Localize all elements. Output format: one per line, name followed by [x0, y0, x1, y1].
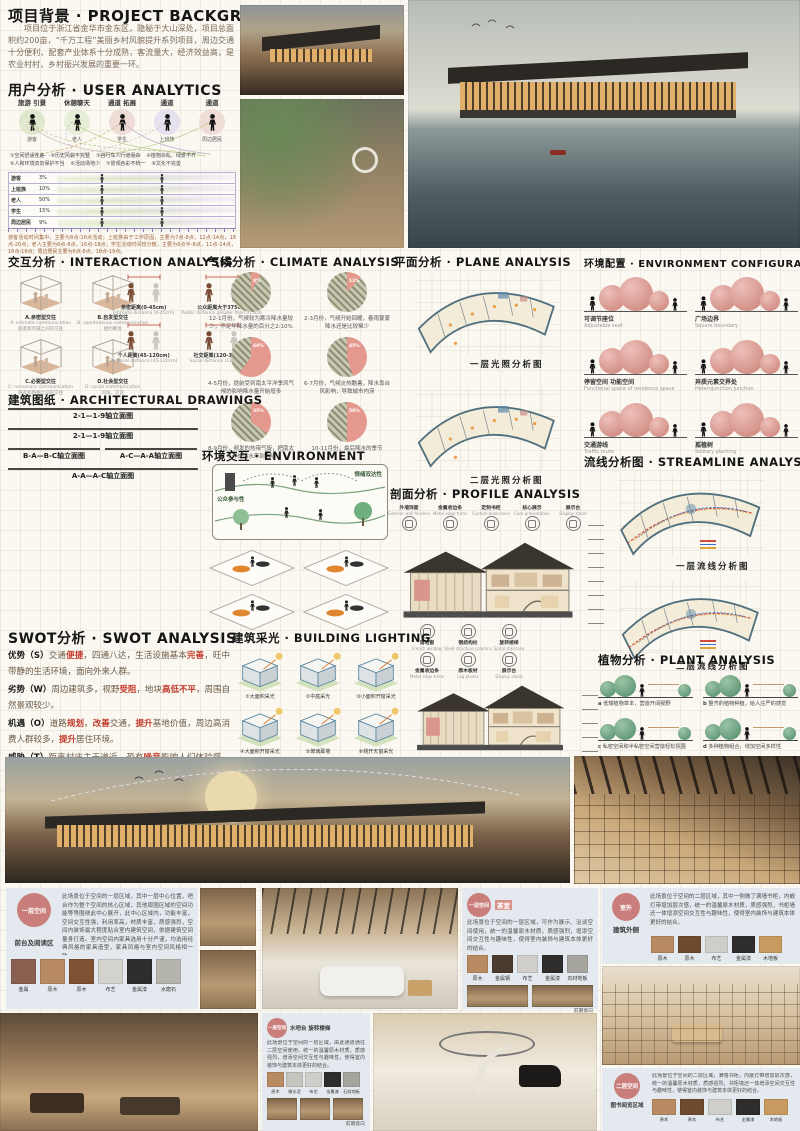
elevation-drawing: [8, 428, 198, 430]
panel-text: 此场景位于空间的一层区域，可作为展示、洽谈空间使用，统一的温馨原木材质，质感强烈…: [467, 919, 593, 953]
lighting-label: ③小面积开窗采光: [356, 693, 395, 700]
material-swatch: [567, 955, 588, 973]
elevation-drawing: [105, 448, 197, 450]
person-icon: [671, 298, 679, 311]
elevation-item: A-C—A-A轴立面图: [105, 448, 197, 463]
iso-tile-diagram: [208, 548, 296, 588]
plant-scene: [598, 670, 693, 698]
user-activity-label: 旅游 引景: [18, 97, 46, 107]
material: 布艺: [98, 959, 123, 993]
callout-icon: [502, 652, 517, 667]
tree-icon: [619, 340, 653, 374]
material: 石材地板: [567, 955, 588, 982]
render-cafe-photo: [0, 1013, 258, 1131]
plant-text: 整齐的植物种植，给人庄严的感觉: [708, 701, 786, 707]
material: 金属: [11, 959, 36, 993]
tree-icon: [760, 354, 780, 374]
material-label: 原木: [47, 986, 57, 993]
activity-timeline: [57, 184, 235, 194]
rainfall-pie: 45%: [327, 337, 367, 377]
callout-label-zh: 金属收边条: [415, 667, 439, 674]
material: 木地板: [759, 936, 782, 962]
spiral-stair: [465, 1043, 515, 1099]
lighting-title: 建筑采光 · BUILDING LIGHTING: [232, 630, 431, 646]
distance-cell: 亲密距离(0-45cm) Intimate distance (0-45cm): [110, 272, 177, 316]
floor-tag-badge: 一层空间: [467, 893, 491, 917]
tree-icon: [614, 675, 636, 697]
material: 布艺: [705, 936, 728, 962]
envconf-label-en: Functional space of residence space: [584, 386, 687, 392]
activity-figure-icon: [99, 207, 105, 216]
plant-item: a 低矮植物草本，营造开阔视野: [598, 670, 693, 707]
material-label: 金属漆: [545, 975, 560, 982]
row-percent: 50%: [39, 197, 57, 203]
activity-figure-icon: [159, 185, 165, 194]
lighting-item: ①大面积采光: [234, 650, 286, 700]
lighting-item: ④大面积开窗采光: [234, 705, 286, 755]
callout-label-zh: 外墙饰面: [399, 504, 418, 511]
plant-items: a 低矮植物草本，营造开阔视野 b 整齐的植物种植，给人庄严的感觉: [598, 670, 798, 750]
material-label: 金属: [18, 986, 28, 993]
activity-timeline: [57, 195, 235, 205]
material-label: 木地板: [770, 1117, 783, 1123]
table: [120, 1097, 180, 1115]
envconf-label-zh: 孤植树: [695, 440, 798, 449]
panel-reception: 一层空间 前台及阅读区 此场景位于空间的一层区域，其中一层中心位置，吧台作为整个…: [6, 888, 198, 1009]
envconf-labels: 异质元素交界处 Heterojunction junction: [695, 377, 798, 392]
arrow-line: [753, 727, 784, 728]
render-elevation-dusk-photo: [5, 757, 570, 883]
tree-icon: [783, 684, 796, 697]
row-user-label: 老人: [9, 197, 39, 204]
floor2-flow-plan: [596, 576, 786, 664]
plant-item: b 整齐的植物种植，给人庄严的感觉: [703, 670, 798, 707]
material-swatch: [286, 1072, 303, 1087]
lighting-cube-diagram: [350, 705, 402, 747]
interaction-distances: 亲密距离(0-45cm) Intimate distance (0-45cm) …: [110, 272, 202, 364]
callout-icon: [502, 624, 517, 639]
row-percent: 3%: [39, 175, 57, 181]
material-swatch: [98, 959, 123, 984]
plant-key: a: [598, 701, 602, 707]
profile-callouts-mid2: 金属收边条 Metal edge trims 原木板材 Log planks 展…: [410, 652, 526, 679]
env-tag-left: 公众参与性: [217, 495, 245, 503]
user-activity-label: 通道: [161, 97, 174, 107]
issue-label: ②历史风貌不完整: [50, 152, 89, 159]
envconf-label-zh: 交通游线: [584, 440, 687, 449]
lighting-item: ③小面积开窗采光: [350, 650, 402, 700]
material-swatch: [705, 936, 728, 953]
birds-icon: [468, 16, 528, 36]
person-icon: [638, 727, 646, 740]
plant-item: d 多种植物组合，增加空间多样性: [703, 713, 798, 750]
callout-icon: [443, 516, 458, 531]
material-swatch: [324, 1072, 341, 1087]
tree-icon: [730, 403, 764, 437]
env-tag-top: 情绪双达性: [354, 470, 382, 478]
deck-line: [460, 110, 736, 118]
elevation-label: A-C—A-A轴立面图: [105, 451, 197, 461]
cube-label-zh: C.必要型交往: [25, 378, 56, 385]
elevation-drawing: [8, 468, 198, 470]
material-label: 原木: [684, 955, 694, 962]
material-swatch: [467, 955, 488, 973]
material-swatch: [343, 1072, 360, 1087]
plant-key: c: [598, 744, 601, 750]
render-dusk-pavilion-photo: [240, 5, 404, 95]
render-reading-lounge-photo: [262, 888, 458, 1009]
callout-icon: [461, 624, 476, 639]
material-swatches: 金属 原木 原木 布艺 金属漆: [11, 959, 193, 993]
lighting-items: ①大面积采光 ②中庭采光 ③小面积开窗采光 ④大面积开窗采光 ⑤玻璃幕墙: [234, 650, 402, 755]
swot-title: SWOT分析 · SWOT ANALYSIS: [8, 628, 237, 648]
callout-label-zh: 展示台: [502, 667, 516, 674]
envconf-label-zh: 停留空间 功能空间: [584, 377, 687, 386]
legend-secondary-route: [700, 644, 716, 646]
tree-icon: [760, 291, 780, 311]
material-swatch: [542, 955, 563, 973]
table-row: 游客 3%: [9, 173, 235, 184]
environment-title: 环境交互 · ENVIRONMENT: [202, 448, 365, 464]
issue-label: ⑦景观色彩不统一: [106, 160, 145, 167]
callout-label-zh: 旋转楼梯: [499, 639, 518, 646]
envconf-labels: 停留空间 功能空间 Functional space of residence …: [584, 377, 687, 392]
pie-percent: 8%: [253, 279, 261, 284]
material-label: 木地板: [763, 955, 778, 962]
material: 原木: [652, 1099, 676, 1123]
callout-icon: [402, 516, 417, 531]
activity-figure-icon: [159, 174, 165, 183]
material-swatch: [267, 1072, 284, 1087]
envconf-label-zh: 可调节座位: [584, 314, 687, 323]
issue-label: ⑤人和环境双向保护不当: [10, 160, 64, 167]
envconf-item: 可调节座位 Adjustable seat: [584, 272, 687, 329]
rainfall-pie: 60%: [231, 337, 271, 377]
reference-photo: [467, 985, 528, 1007]
callout-label-zh: 展示台: [566, 504, 580, 511]
callout: 展示台 Display stand: [492, 652, 526, 679]
floor-tag-badge: 一层空间: [267, 1018, 287, 1038]
dimension-marks: [582, 682, 598, 752]
distance-cell: 个人距离(45-120cm) Personal distance (45-120…: [110, 320, 177, 364]
person-icon: [782, 361, 790, 374]
tree-icon: [730, 277, 764, 311]
tree-icon: [730, 340, 764, 374]
material-label: 布艺: [711, 955, 721, 962]
callout: 定制书柜 Custom bookcases: [474, 504, 508, 531]
envconf-label-en: Heterojunction junction: [695, 386, 798, 392]
envconf-scene: [584, 398, 687, 438]
elevation-label: B-A—B-C轴立面图: [8, 451, 100, 461]
activity-figure-icon: [99, 218, 105, 227]
callout: 核心展示 Core presentation: [515, 504, 549, 531]
callout-label-zh: 原木板材: [458, 667, 477, 674]
swot-label: 劣势（W）: [8, 685, 51, 695]
zone-label: 茶室: [495, 900, 512, 910]
main-lit-facade: [460, 82, 736, 110]
swot-paragraph: 优势（S）交通便捷，四通八达，生活设施基本完善，旺中带静的生活环境，面向外来人群…: [8, 648, 230, 680]
section-drawing-2: [400, 678, 580, 754]
reference-label: 前期意向: [267, 1120, 365, 1127]
material-label: 原木: [660, 1117, 668, 1123]
callout: 外墙饰面 Exterior wall finishes: [392, 504, 426, 531]
flight-arc: [45, 761, 525, 805]
user-issues: ①空间舒适性差②历史风貌不完整③自行车人行道混杂④植物杂乱、绿景不齐⑤人和环境双…: [10, 152, 236, 167]
cube-diagram: [11, 272, 71, 314]
material-label: 原木: [472, 975, 482, 982]
table-row: 上班族 10%: [9, 184, 235, 195]
swot-paragraph: 劣势（W）周边建筑多，视野受阻，地块高低不平，周围自然景观较少。: [8, 682, 230, 714]
issue-label: ⑥活动场地少: [70, 160, 99, 167]
callout: 金属收边条 Metal edge trims: [410, 652, 444, 679]
envconf-item: 广场边界 Square boundary: [695, 272, 798, 329]
issue-label: ①空间舒适性差: [10, 152, 44, 159]
white-sofa: [320, 966, 404, 996]
legend-main-route: [700, 640, 716, 642]
row-user-label: 游客: [9, 175, 39, 182]
plant-caption: b 整齐的植物种植，给人庄严的感觉: [703, 700, 798, 707]
lighting-label: ①大面积采光: [245, 693, 274, 700]
material-label: 布艺: [716, 1117, 724, 1123]
profile-title: 剖面分析 · PROFILE ANALYSIS: [390, 486, 580, 502]
callout: 展示台 Display stand: [556, 504, 590, 531]
lighting-item: ⑤玻璃幕墙: [292, 705, 344, 755]
tree-icon: [678, 727, 691, 740]
material-label: 金属漆: [132, 986, 147, 993]
envconf-labels: 交通游线 Traffic route: [584, 440, 687, 455]
elevation-drawing: [8, 408, 198, 410]
elevation-item: B-A—B-C轴立面图: [8, 448, 100, 463]
user-activity-table: 游客 3% 上班族 10% 老人 50%: [8, 172, 236, 229]
floor-tag-badge: 室外: [612, 893, 640, 921]
material-label: 金属漆: [326, 1089, 339, 1095]
material: 金属钢: [492, 955, 513, 982]
arrow-line: [753, 684, 784, 685]
envconf-items: 可调节座位 Adjustable seat 广场边界 Square bounda…: [584, 272, 798, 455]
activity-figure-icon: [159, 196, 165, 205]
distance-label-en: Intimate distance (0-45cm): [113, 311, 174, 316]
material-label: 原木: [76, 986, 86, 993]
callout: 钢结构柱 Steel structure columns: [451, 624, 485, 651]
callout-label-zh: 核心展示: [522, 504, 541, 511]
rainfall-pie: 12%: [327, 272, 367, 312]
tree-icon: [649, 417, 669, 437]
envconf-item: 交通游线 Traffic route: [584, 398, 687, 455]
tree-icon: [719, 675, 741, 697]
wood-table: [672, 1024, 722, 1042]
activity-timeline: [57, 173, 235, 183]
panel-exterior: 室外 建筑外侧 此场景位于空间的二层区域，其中一侧做了满墙书柜，内嵌灯带增加层次…: [602, 888, 800, 964]
legend-secondary-route: [700, 544, 716, 546]
reference-photo: [532, 985, 593, 1007]
callout-label-zh: 钢结构柱: [458, 639, 477, 646]
tree-icon: [619, 403, 653, 437]
panel-text: 此场景位于空间的一层区域，由此通道通往二层空间使用，统一的温馨原木材质，质感强烈…: [267, 1040, 365, 1070]
envconf-scene: [584, 335, 687, 375]
iso-tile-diagram: [302, 592, 390, 632]
plant-key: d: [703, 744, 707, 750]
poster-board: 项目背景 · PROJECT BACKGROUND 项目位于浙江省金华市金东区，…: [0, 0, 800, 1131]
interaction-cube-cell: C.必要型交往 C: necessary communication 朋友和熟络…: [8, 336, 73, 396]
material-label: 原木: [688, 1117, 696, 1123]
material: 金属漆: [324, 1072, 341, 1095]
rainfall-pie: 35%: [231, 402, 271, 442]
material-swatch: [764, 1099, 788, 1115]
envconf-item: 异质元素交界处 Heterojunction junction: [695, 335, 798, 392]
person-icon: [782, 298, 790, 311]
material: 布艺: [708, 1099, 732, 1123]
landscape-iso-tiles: [208, 548, 392, 632]
floor1-light-plan: [394, 270, 580, 358]
legend-visitor-route: [700, 647, 716, 649]
cube-diagram: [11, 336, 71, 378]
interaction-title: 交互分析 · INTERACTION ANALYSIS: [8, 254, 233, 270]
arrow-line: [648, 684, 679, 685]
row-user-label: 学生: [9, 208, 39, 215]
envconf-scene: [584, 272, 687, 312]
person-icon: [671, 424, 679, 437]
flow-legend: [700, 540, 716, 549]
plant-caption: c 私密空间和半私密空间营造轻松氛围: [598, 743, 693, 750]
cube-label-zh: D.社会型交往: [97, 378, 128, 385]
envconf-labels: 可调节座位 Adjustable seat: [584, 314, 687, 329]
lighting-cube-diagram: [234, 650, 286, 692]
callout-icon: [525, 516, 540, 531]
rainfall-pie-item: 12% 2-3月份，气候开始回暖，春雨蒙蒙降水还是比较稀少: [304, 272, 390, 331]
issue-label: ④植物杂乱、绿景不齐: [146, 152, 195, 159]
row-user-label: 周边居民: [9, 219, 39, 226]
panel-text: 此场景位于空间的二层区域，满墙书柜，内嵌灯带增加层次感，统一的温馨原木材质，质感…: [652, 1073, 795, 1097]
panel-waterbar: 一层空间 水吧台 旋转楼梯 此场景位于空间的一层区域，由此通道通往二层空间使用，…: [262, 1013, 370, 1131]
elevation-item: 2-1—1-9轴立面图: [8, 428, 198, 443]
cube-label-zh: A.亲密型交往: [25, 314, 56, 321]
swot-paragraph: 机遇（O）道路规划，改善交通，提升基地价值，周边高消费人群较多，提升居住环境。: [8, 716, 230, 748]
callout-label-zh: 金属收边条: [438, 504, 462, 511]
interaction-cube-cell: A.亲密型交往 A: intimate communication 朋友和亲属之…: [8, 272, 73, 332]
floor2-light-label: 二层光照分析图: [470, 474, 544, 486]
elevation-label: 2-1—1-9轴立面图: [8, 411, 198, 421]
tree-icon: [760, 417, 780, 437]
material: 原木: [467, 955, 488, 982]
material-label: 水磨石: [161, 986, 176, 993]
flow-legend: [700, 640, 716, 649]
rainfall-pie: 8%: [231, 272, 271, 312]
tree-icon: [619, 277, 653, 311]
elevation-drawing: [8, 448, 100, 450]
lit-facade: [270, 49, 372, 62]
lighting-item: ⑥侧开天窗采光: [350, 705, 402, 755]
material-label: 金属漆: [736, 955, 751, 962]
reference-photo: [267, 1098, 297, 1120]
envconf-labels: 广场边界 Square boundary: [695, 314, 798, 329]
callout: 金属收边条 Metal edge trims: [433, 504, 467, 531]
plant-text: 多种植物组合，增加空间多样性: [708, 744, 781, 750]
pie-percent: 35%: [253, 409, 264, 414]
pie-caption: 12-1月份，气候较为寒冷降水量较少，不足年降水量的百分之2:10%: [208, 315, 294, 331]
plane-title: 平面分析 · PLANE ANALYSIS: [394, 254, 571, 270]
material-label: 原木: [657, 955, 667, 962]
lighting-label: ②中庭采光: [306, 693, 330, 700]
person-icon: [743, 727, 751, 740]
activity-figure-icon: [159, 218, 165, 227]
envconf-item: 孤植树 Solitary planting: [695, 398, 798, 455]
material-label: 金属钢: [495, 975, 510, 982]
callout-label-zh: 定制书柜: [481, 504, 500, 511]
elevation-label: 2-1—1-9轴立面图: [8, 431, 198, 441]
plant-scene: [598, 713, 693, 741]
iso-tile-diagram: [208, 592, 296, 632]
issue-label: ⑧文化不完善: [151, 160, 180, 167]
user-activity-label: 休憩聊天: [64, 97, 90, 107]
material-swatch: [11, 959, 36, 984]
plant-scene: [703, 670, 798, 698]
envconf-scene: [695, 398, 798, 438]
person-icon: [699, 359, 708, 374]
floor-tag-badge: 二层空间: [614, 1073, 640, 1099]
floor2-light-plan: [394, 384, 580, 472]
pie-percent: 50%: [349, 409, 360, 414]
lighting-cube-diagram: [234, 705, 286, 747]
roof-silhouette: [262, 25, 380, 51]
material-swatch: [517, 955, 538, 973]
red-boat: [550, 150, 566, 155]
tree-icon: [649, 354, 669, 374]
panel-text: 此场景位于空间的一层区域，其中一层中心位置，吧台作为整个空间的核心区域，其他周围…: [62, 893, 193, 955]
distance-diagram: [122, 272, 166, 304]
person-icon: [588, 296, 597, 311]
material-swatches: 原木 原木 布艺 金属漆 木地板: [607, 936, 795, 962]
plant-item: c 私密空间和半私密空间营造轻松氛围: [598, 713, 693, 750]
lighting-cube-diagram: [292, 650, 344, 692]
material: 金属漆: [127, 959, 152, 993]
wood-table: [408, 980, 432, 996]
zone-label: 建筑外侧: [613, 924, 639, 934]
material-swatch: [759, 936, 782, 953]
material-swatch: [305, 1072, 322, 1087]
iso-tile-diagram: [302, 548, 390, 588]
envconf-label-zh: 异质元素交界处: [695, 377, 798, 386]
climate-title: 气候分析 · CLIMATE ANALYSIS: [208, 254, 399, 270]
tree-icon: [649, 291, 669, 311]
envconf-scene: [695, 272, 798, 312]
material-swatch: [736, 1099, 760, 1115]
elevation-item: A-A—A-C轴立面图: [8, 468, 198, 483]
row-percent: 9%: [39, 220, 57, 226]
material: 原木: [680, 1099, 704, 1123]
material-swatch: [678, 936, 701, 953]
arrow-line: [648, 727, 679, 728]
plants-title: 植物分析 · PLANT ANALYSIS: [598, 652, 775, 668]
round-window: [352, 147, 378, 173]
material-swatch: [127, 959, 152, 984]
callout-icon: [566, 516, 581, 531]
streamline-title: 流线分析图 · STREAMLINE ANALYSIS: [584, 454, 800, 470]
legend-visitor-route: [700, 547, 716, 549]
row-user-label: 上班族: [9, 186, 39, 193]
material: 原木: [40, 959, 65, 993]
material-label: 微水泥: [288, 1089, 301, 1095]
callout-label-en: Steel structure columns: [444, 646, 492, 651]
distance-label-zh: 个人距离(45-120cm): [118, 352, 170, 359]
envconf-item: 停留空间 功能空间 Functional space of residence …: [584, 335, 687, 392]
callout: 旋转楼梯 Spiral staircase: [492, 624, 526, 651]
envconf-label-en: Adjustable seat: [584, 323, 687, 329]
zone-label: 前台及阅读区: [15, 937, 54, 947]
grand-piano: [519, 1065, 561, 1087]
plant-caption: a 低矮植物草本，营造开阔视野: [598, 700, 693, 707]
person-icon: [638, 684, 646, 697]
lighting-label: ⑤玻璃幕墙: [306, 748, 330, 755]
